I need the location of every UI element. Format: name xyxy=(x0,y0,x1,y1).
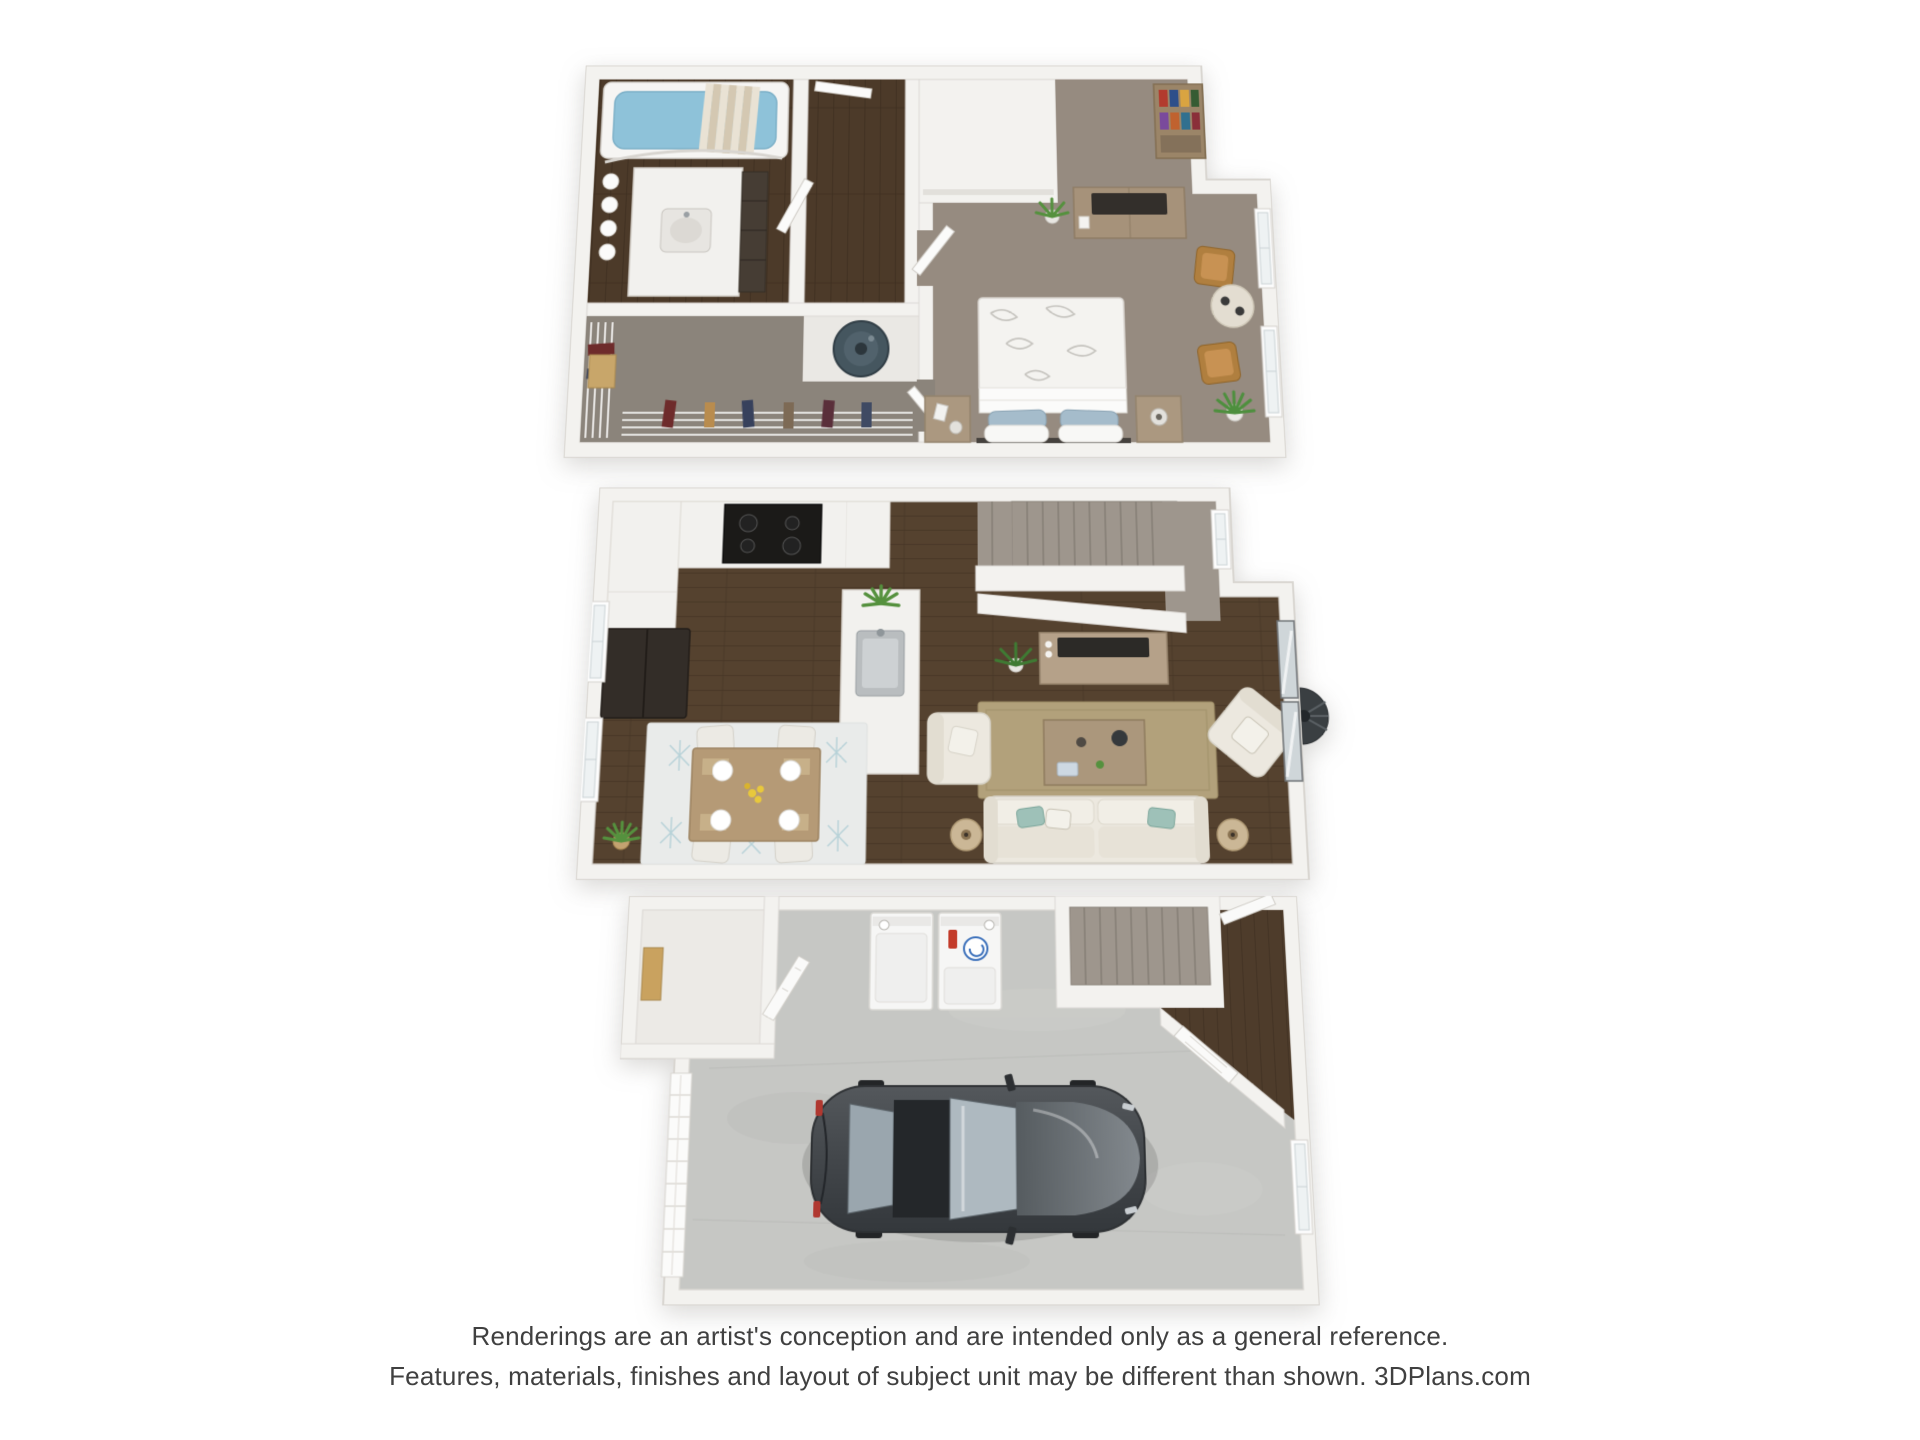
second-floor-svg xyxy=(576,487,1345,879)
second-floor-plan xyxy=(588,480,1333,875)
third-floor-plan xyxy=(575,58,1275,453)
third-floor-svg xyxy=(564,65,1287,457)
stair-treads xyxy=(1070,907,1211,985)
accent-chair-top xyxy=(1194,246,1235,289)
dining-area xyxy=(641,723,868,864)
detergent-bottle xyxy=(948,930,957,949)
windshield xyxy=(950,1098,1017,1220)
coffee-table xyxy=(1044,720,1147,785)
disclaimer-line-1: Renderings are an artist's conception an… xyxy=(0,1316,1920,1356)
sedan-car xyxy=(800,1073,1161,1245)
taillight xyxy=(815,1100,822,1116)
bathtub xyxy=(600,82,789,162)
stair-railing-wall xyxy=(976,566,1185,591)
nightstand-left xyxy=(925,396,970,442)
stairwell-shadow xyxy=(923,189,1054,195)
washer xyxy=(938,913,1001,1010)
white-pillow xyxy=(1045,809,1071,830)
nightstand-right xyxy=(1136,396,1183,442)
plate xyxy=(780,760,801,780)
tv xyxy=(1057,638,1149,658)
teal-pillow-2 xyxy=(1147,807,1175,829)
stairwell-void xyxy=(919,80,1058,203)
plate xyxy=(779,810,800,831)
water-heater-closet xyxy=(803,316,919,381)
shower-curtain xyxy=(699,83,761,155)
teal-pillow-1 xyxy=(1016,806,1045,828)
floor-lamp-left xyxy=(951,819,982,850)
vanity xyxy=(628,168,768,296)
white-pillow-left xyxy=(985,425,1049,442)
stair-lower-treads xyxy=(978,502,1013,566)
disclaimer: Renderings are an artist's conception an… xyxy=(0,1316,1920,1396)
refrigerator xyxy=(601,629,690,718)
duvet xyxy=(978,298,1126,392)
staircase xyxy=(1055,896,1224,1008)
accent-chair-bottom xyxy=(1197,341,1242,385)
disclaimer-line-2: Features, materials, finishes and layout… xyxy=(0,1356,1920,1396)
stored-items xyxy=(641,948,663,1000)
car-roof xyxy=(893,1100,950,1218)
closet-dresser xyxy=(588,355,616,388)
vanity-drawers xyxy=(739,172,768,292)
range-cooktop xyxy=(722,504,822,563)
dresser-with-tv xyxy=(1073,187,1186,238)
closet-top-wall xyxy=(587,303,933,316)
sofa xyxy=(983,796,1210,863)
dining-table xyxy=(689,748,820,841)
dryer xyxy=(869,913,933,1010)
plate xyxy=(710,810,731,831)
armchair-left xyxy=(927,713,990,784)
plate xyxy=(712,760,733,780)
bookcase xyxy=(1153,84,1205,158)
window-top-right xyxy=(1211,510,1231,569)
window-left-upper xyxy=(586,602,610,682)
closet-bottom-wall xyxy=(620,1044,775,1059)
window-left-lower xyxy=(578,718,602,802)
armchair-pillow xyxy=(947,726,978,757)
staircase xyxy=(976,502,1222,633)
white-pillow-right xyxy=(1059,425,1123,442)
first-floor-svg xyxy=(606,896,1320,1305)
tissue-box xyxy=(1057,763,1078,776)
tv-console xyxy=(1039,633,1168,684)
taillight xyxy=(813,1201,821,1217)
floorplan-sheet: Renderings are an artist's conception an… xyxy=(0,0,1920,1440)
rear-window xyxy=(848,1104,894,1213)
tv xyxy=(1091,193,1167,214)
floor-lamp-right xyxy=(1217,819,1249,850)
first-floor-plan xyxy=(618,888,1308,1300)
